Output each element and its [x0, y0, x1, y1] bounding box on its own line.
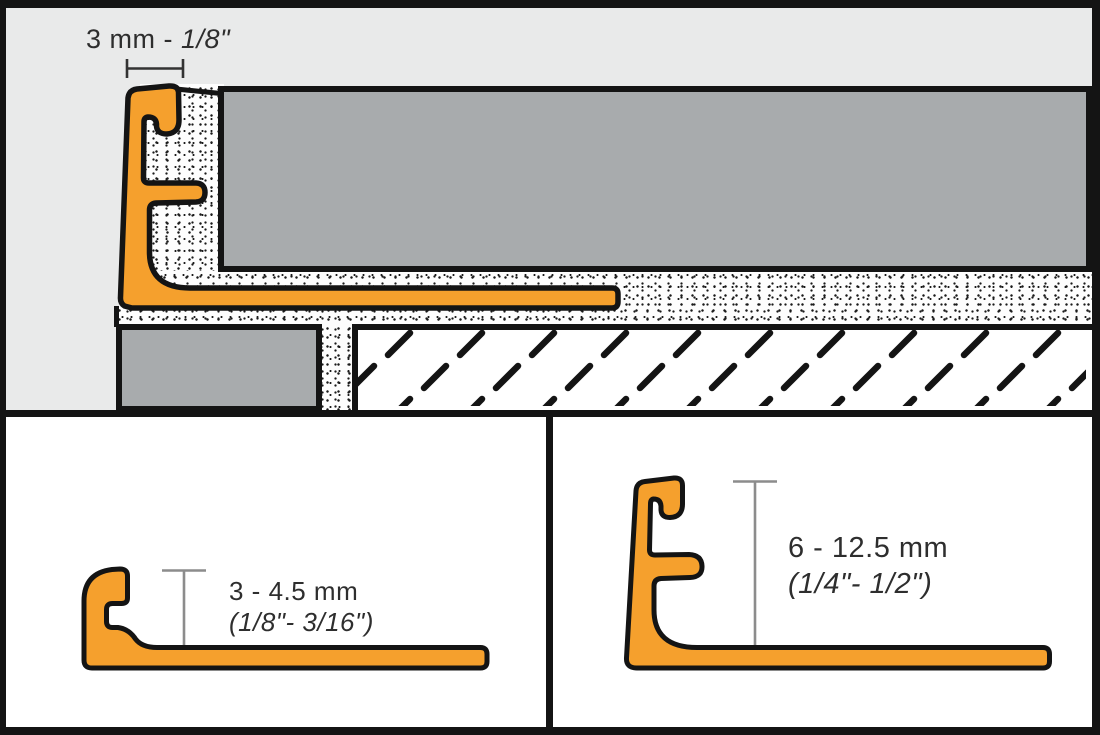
profile-width-imperial: 1/8": [181, 24, 230, 54]
tile-edge-profile-diagram: 3 mm - 1/8" 3 - 4.5 mm (1/8"- 3/16") 6 -…: [0, 0, 1100, 735]
page-border-bottom: [0, 727, 1100, 735]
page-border-left: [0, 0, 6, 735]
low-profile-height-imperial: (1/8"- 3/16"): [229, 608, 374, 636]
high-profile-height-metric: 6 - 12.5 mm: [788, 533, 948, 564]
low-profile-height-dimension-line: [162, 571, 206, 646]
mortar-joint-strip: [322, 324, 352, 412]
substrate-cross-section: [352, 324, 1092, 412]
high-profile-height-imperial: (1/4"- 1/2"): [788, 569, 932, 600]
vertical-panel-divider: [546, 410, 553, 735]
substrate-hatch-pattern: [358, 330, 1086, 406]
page-border-right: [1092, 0, 1100, 735]
tile-cross-section: [218, 86, 1092, 272]
page-border-top: [0, 0, 1100, 8]
thinset-mortar-band-lower: [114, 306, 1092, 326]
mortar-joint-column: [140, 84, 224, 270]
high-profile-height-dimension-line: [733, 482, 777, 646]
low-profile-height-metric: 3 - 4.5 mm: [229, 577, 358, 605]
profile-width-label: 3 mm - 1/8": [86, 25, 230, 54]
profile-width-metric: 3 mm -: [86, 24, 181, 54]
adjacent-tile-cross-section: [116, 324, 322, 412]
